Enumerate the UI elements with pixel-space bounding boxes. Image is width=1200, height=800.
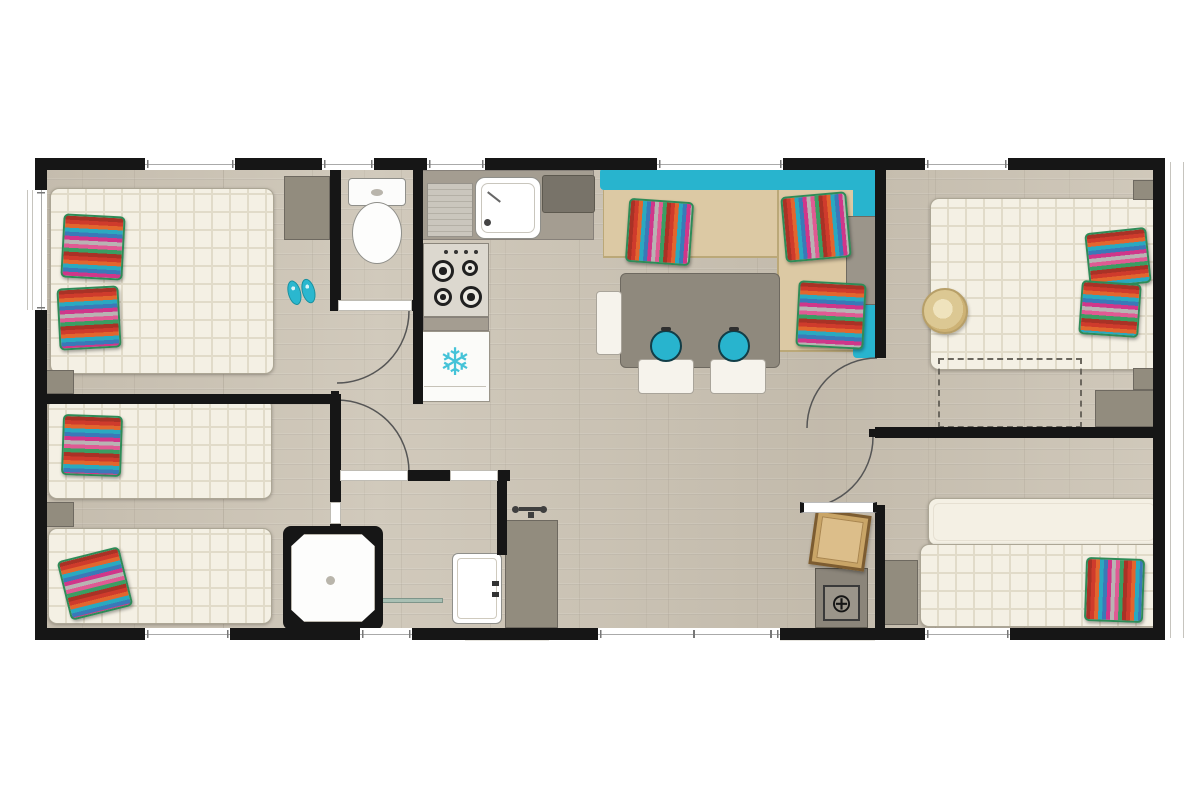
interior-wall-living-right xyxy=(875,164,886,358)
window xyxy=(925,628,1010,640)
window xyxy=(145,628,230,640)
door-opening-twin-bedroom xyxy=(330,502,341,524)
window xyxy=(35,190,47,310)
interior-wall-bedroom-right xyxy=(875,427,1165,438)
interior-wall-bedroom-right-lower xyxy=(875,505,885,628)
sliding-door-window xyxy=(598,628,780,640)
shower-tray xyxy=(291,534,375,622)
interior-wall-bathroom-right xyxy=(497,481,507,555)
interior-wall-kitchen xyxy=(413,164,423,404)
mobile-home-floor-plan: ❄ ⊕ xyxy=(35,158,1165,640)
exterior-window-sill xyxy=(27,190,33,310)
window-mullion xyxy=(693,630,695,638)
door-leaf-right-bedroom xyxy=(800,502,877,513)
interior-wall-wc-left xyxy=(330,164,341,310)
window xyxy=(145,158,235,170)
window xyxy=(360,628,412,640)
window xyxy=(322,158,374,170)
shower-cubicle xyxy=(283,526,383,630)
door-opening-bathroom-2 xyxy=(450,470,498,481)
door-opening-wc xyxy=(338,300,412,311)
window xyxy=(925,158,1008,170)
window xyxy=(427,158,485,170)
floor-plan-canvas: ❄ ⊕ xyxy=(0,0,1200,800)
window-mullion xyxy=(770,630,772,638)
interior-wall-bedrooms-left xyxy=(45,394,336,404)
door-hinge xyxy=(331,391,339,399)
door-opening-bathroom xyxy=(340,470,408,481)
exterior-trim-right xyxy=(1170,162,1184,638)
window xyxy=(657,158,783,170)
door-hinge xyxy=(869,429,877,437)
exterior-wall-right xyxy=(1153,158,1165,640)
